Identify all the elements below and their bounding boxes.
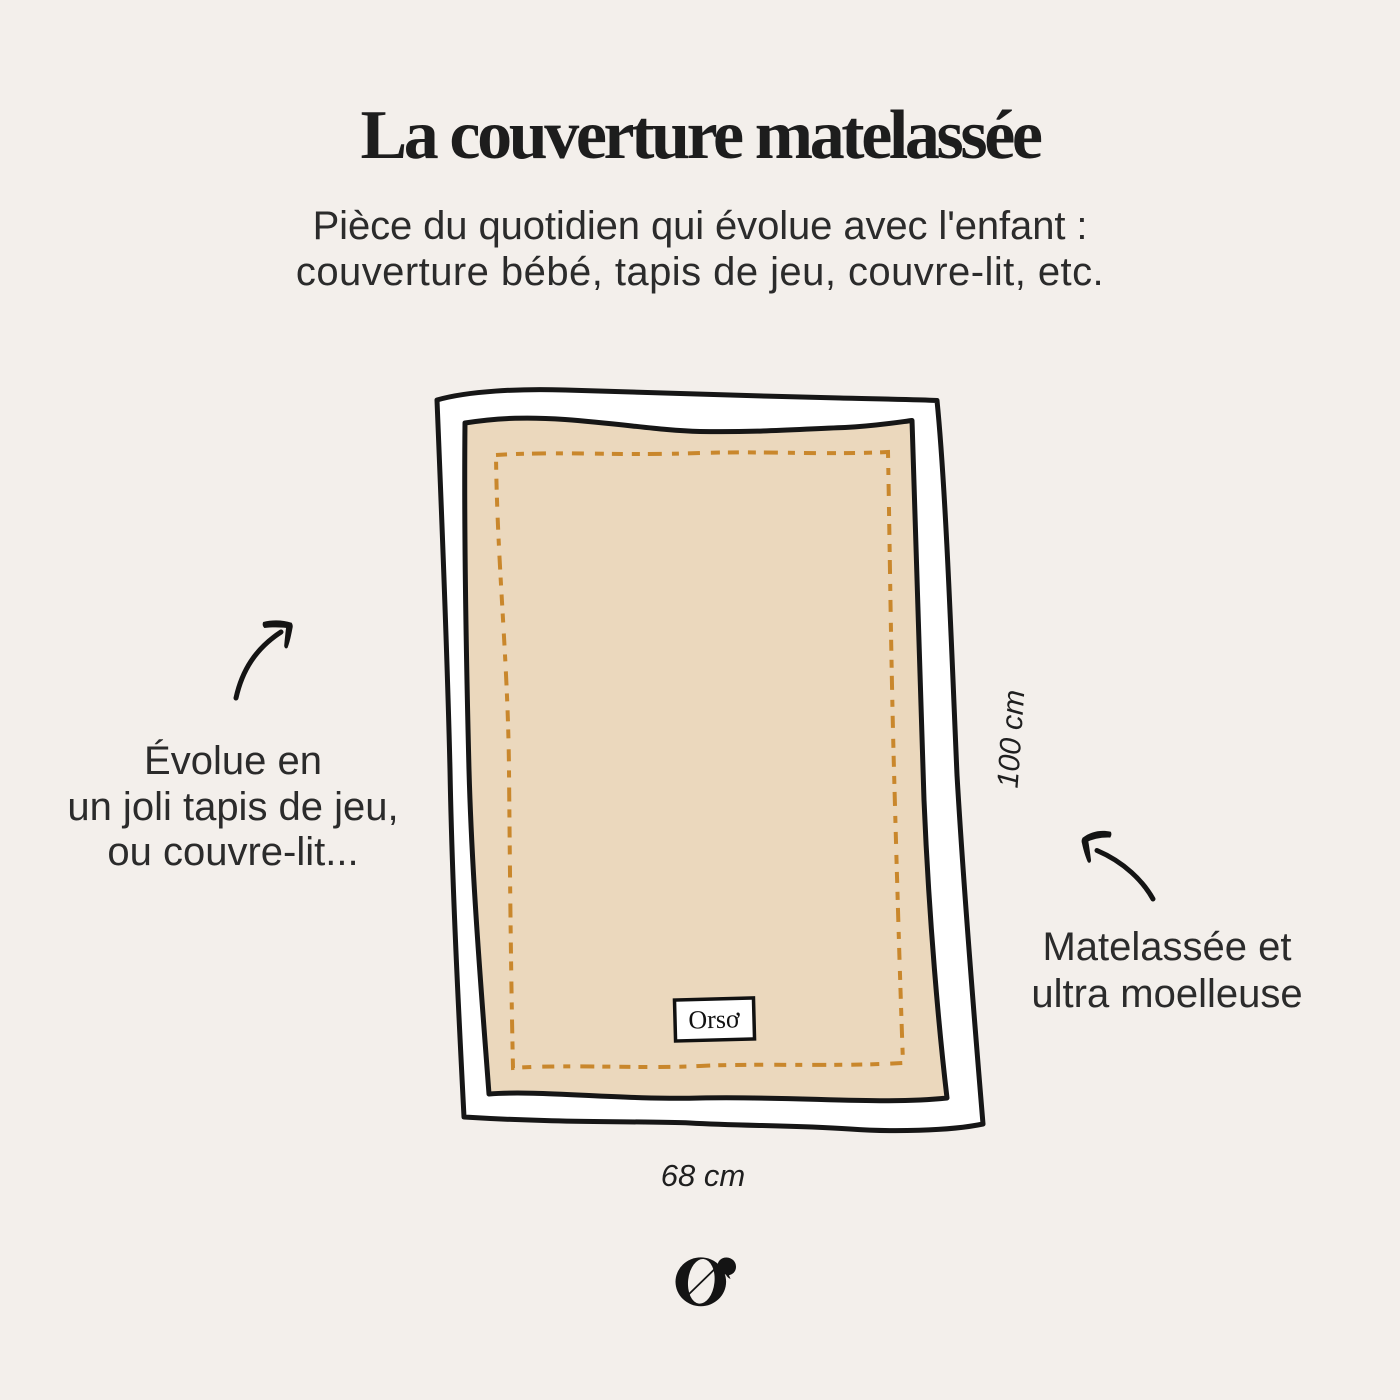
svg-text:Orsơ: Orsơ <box>688 1004 741 1034</box>
